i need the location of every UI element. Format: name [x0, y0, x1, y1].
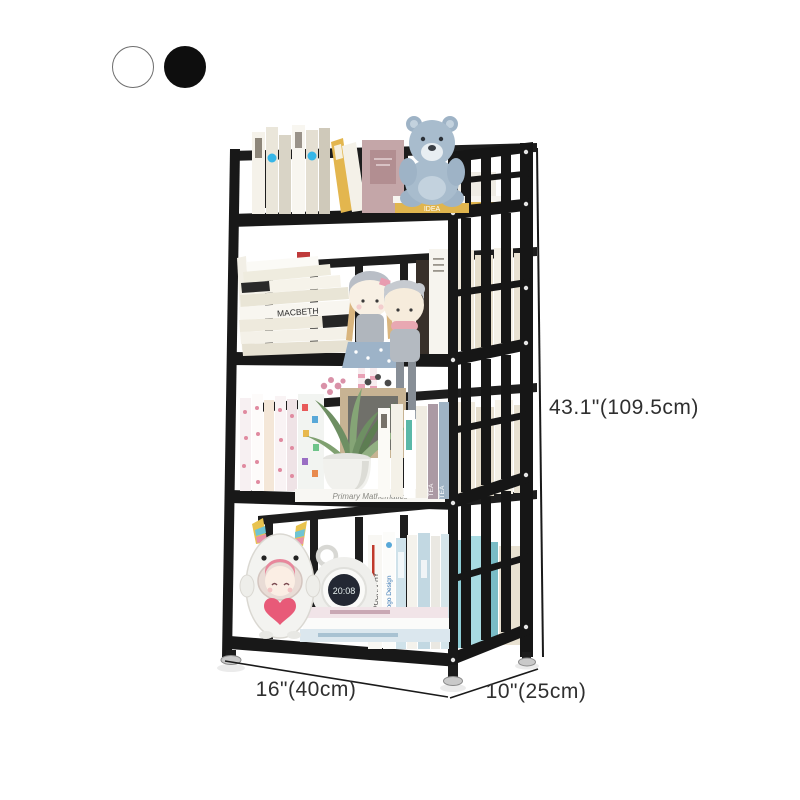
horizontal-book-stack [300, 607, 450, 642]
book-logo-design-text: Logo Design [386, 575, 393, 612]
blue-dot-sticker [268, 154, 277, 163]
book-tea-text: TEA [439, 485, 446, 498]
height-dimension-line [537, 148, 543, 657]
book-tea-text: TEA [428, 483, 435, 496]
book-idea-text: IDEA [424, 206, 441, 213]
teddy-bear [399, 116, 465, 207]
product-image: IDEA [0, 0, 800, 800]
depth-dimension-label: 10"(25cm) [486, 680, 587, 703]
bookshelf-illustration: IDEA [0, 0, 800, 800]
back-right-post [520, 143, 533, 657]
blue-dot-sticker [308, 152, 317, 161]
front-right-post [448, 154, 458, 676]
front-left-post [222, 149, 240, 657]
height-dimension-label: 43.1"(109.5cm) [549, 396, 699, 419]
clock-time-text: 20:08 [333, 586, 356, 596]
width-dimension-label: 16"(40cm) [256, 678, 357, 701]
adjustable-foot [444, 665, 463, 686]
shelf-4-items: TYPOGRAPHY Logo Design 20:08 [240, 518, 450, 649]
